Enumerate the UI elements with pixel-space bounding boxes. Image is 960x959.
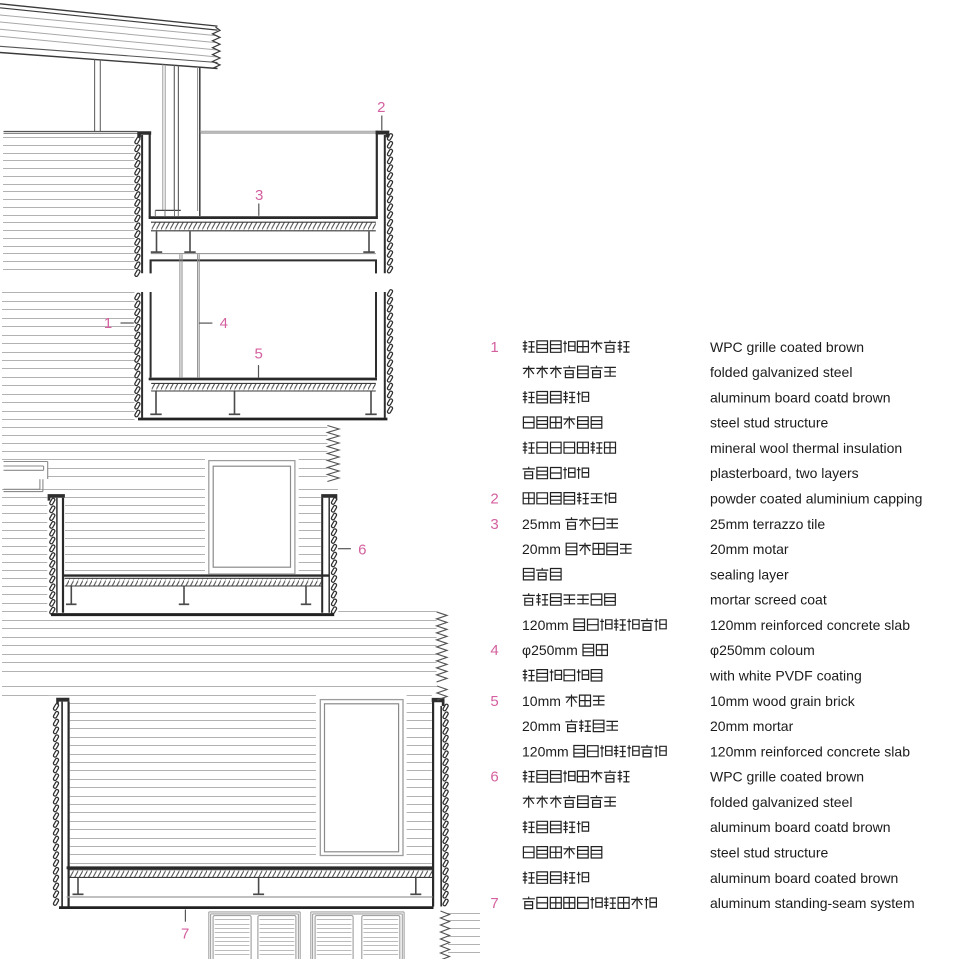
svg-text:10mm wood grain brick: 10mm wood grain brick: [710, 693, 856, 709]
svg-text:steel stud structure: steel stud structure: [710, 415, 828, 431]
svg-text:6: 6: [490, 769, 498, 786]
svg-text:φ250mm coloum: φ250mm coloum: [710, 642, 815, 658]
svg-text:120mm: 120mm: [522, 743, 569, 759]
svg-text:steel stud structure: steel stud structure: [710, 845, 828, 861]
svg-text:20mm mortar: 20mm mortar: [710, 718, 794, 734]
svg-text:5: 5: [490, 693, 498, 710]
svg-text:6: 6: [358, 541, 366, 558]
svg-text:mortar screed coat: mortar screed coat: [710, 592, 827, 608]
svg-text:20mm motar: 20mm motar: [710, 541, 789, 557]
svg-text:WPC grille coated brown: WPC grille coated brown: [710, 339, 864, 355]
svg-text:20mm: 20mm: [522, 541, 561, 557]
svg-text:φ250mm: φ250mm: [522, 642, 578, 658]
svg-text:with white PVDF coating: with white PVDF coating: [709, 668, 862, 684]
svg-text:1: 1: [490, 339, 498, 356]
svg-text:plasterboard, two layers: plasterboard, two layers: [710, 465, 859, 481]
svg-text:aluminum standing-seam system: aluminum standing-seam system: [710, 895, 915, 911]
svg-text:1: 1: [104, 315, 112, 332]
svg-text:3: 3: [255, 187, 263, 204]
svg-text:sealing layer: sealing layer: [710, 566, 789, 582]
svg-text:120mm reinforced concrete slab: 120mm reinforced concrete slab: [710, 617, 910, 633]
svg-text:2: 2: [377, 99, 385, 116]
svg-text:mineral wool thermal insulatio: mineral wool thermal insulation: [710, 440, 902, 456]
svg-text:2: 2: [490, 491, 498, 508]
svg-text:7: 7: [181, 926, 189, 943]
svg-text:120mm: 120mm: [522, 617, 569, 633]
svg-text:4: 4: [490, 642, 498, 659]
svg-text:10mm: 10mm: [522, 693, 561, 709]
svg-text:120mm reinforced concrete slab: 120mm reinforced concrete slab: [710, 743, 910, 759]
svg-text:25mm: 25mm: [522, 516, 561, 532]
svg-text:20mm: 20mm: [522, 718, 561, 734]
svg-text:7: 7: [490, 895, 498, 912]
svg-text:4: 4: [220, 315, 228, 332]
svg-text:25mm terrazzo tile: 25mm terrazzo tile: [710, 516, 825, 532]
svg-text:aluminum board coatd brown: aluminum board coatd brown: [710, 389, 891, 405]
svg-text:aluminum board coatd brown: aluminum board coatd brown: [710, 819, 891, 835]
svg-text:WPC grille coated brown: WPC grille coated brown: [710, 769, 864, 785]
svg-text:aluminum board coated brown: aluminum board coated brown: [710, 870, 898, 886]
svg-text:folded galvanized steel: folded galvanized steel: [710, 794, 852, 810]
svg-text:3: 3: [490, 516, 498, 533]
svg-text:powder coated aluminium cappin: powder coated aluminium capping: [710, 491, 922, 507]
svg-text:5: 5: [255, 345, 263, 362]
svg-text:folded galvanized steel: folded galvanized steel: [710, 364, 852, 380]
